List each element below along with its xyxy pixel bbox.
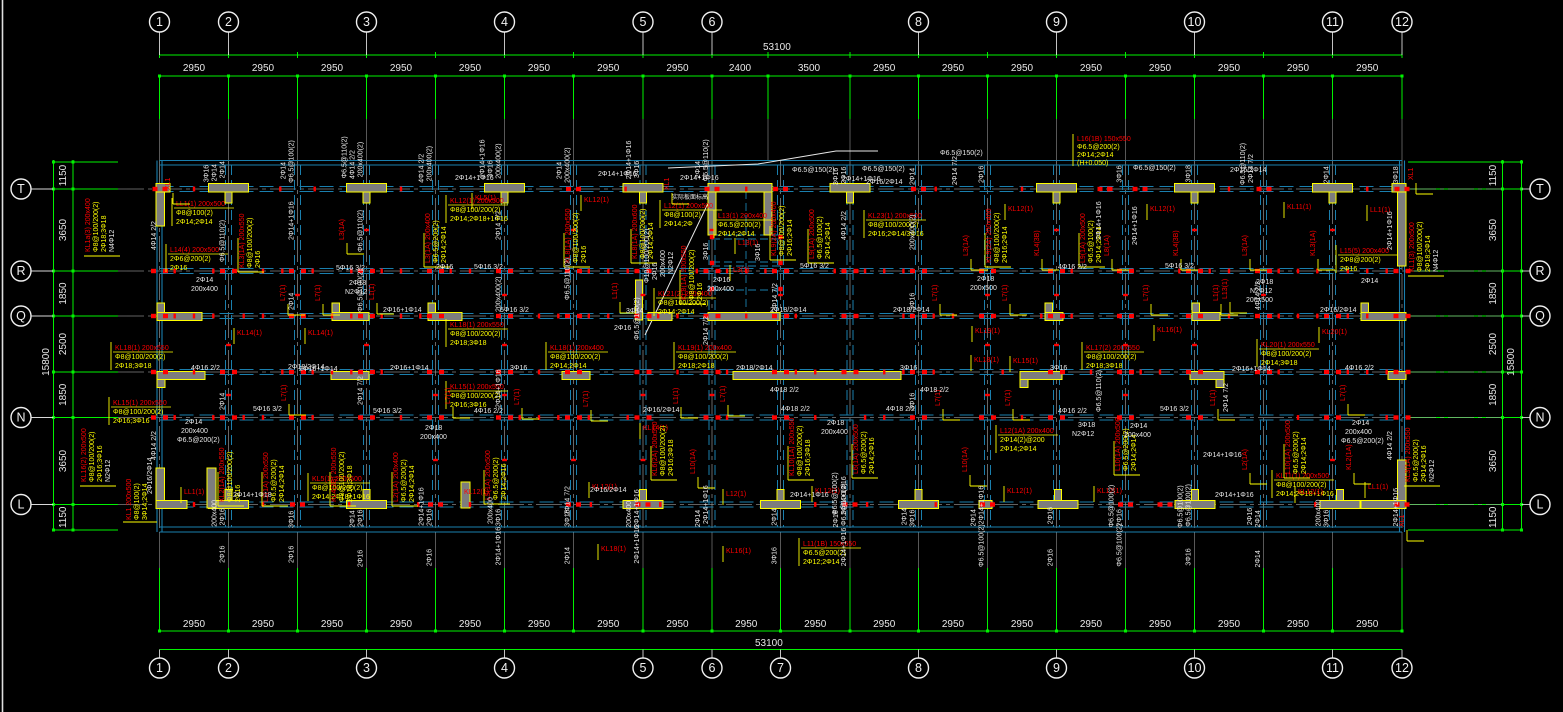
svg-text:11: 11 [1326,661,1339,675]
svg-text:Φ8@100/200(2): Φ8@100/200(2) [450,331,500,338]
svg-text:1850: 1850 [1488,383,1499,406]
svg-text:2Φ14 7/2: 2Φ14 7/2 [772,283,779,312]
svg-text:Φ6.5@100(2): Φ6.5@100(2) [1186,484,1193,527]
svg-text:Φ8@100/200(2): Φ8@100/200(2) [1417,222,1424,272]
svg-text:2Φ16: 2Φ16 [979,166,986,183]
svg-text:4: 4 [501,15,508,29]
svg-text:L7(1): L7(1) [1002,285,1009,301]
svg-text:N: N [1535,411,1544,425]
svg-text:KL5(1): KL5(1) [475,195,496,202]
svg-text:2Φ16;3Φ16: 2Φ16;3Φ16 [97,445,104,482]
svg-text:2Φ14;2Φ16: 2Φ14;2Φ16 [1421,445,1428,482]
svg-text:KL12(1): KL12(1) [1150,206,1175,213]
svg-text:L10(1A): L10(1A) [962,447,969,472]
svg-text:L7(1): L7(1) [281,385,288,401]
svg-text:2950: 2950 [666,63,689,74]
svg-text:2Φ16;3Φ18: 2Φ16;3Φ18 [347,465,354,502]
svg-text:2Φ8@200(2): 2Φ8@200(2) [1340,257,1381,264]
svg-text:KL16(1): KL16(1) [726,548,751,555]
svg-text:Φ6.5@100(2): Φ6.5@100(2) [1178,485,1185,528]
svg-text:2Φ16/2Φ14: 2Φ16/2Φ14 [1320,307,1357,314]
svg-text:1850: 1850 [1488,282,1499,305]
svg-text:KL2(1A): KL2(1A) [1346,444,1353,470]
svg-text:XL1: XL1 [1408,167,1415,180]
svg-text:2950: 2950 [1080,63,1103,74]
svg-text:2Φ14+1Φ16: 2Φ14+1Φ16 [703,485,710,524]
svg-text:2Φ14: 2Φ14 [196,277,213,284]
svg-text:2950: 2950 [528,63,551,74]
svg-text:3Φ16: 3Φ16 [772,547,779,564]
svg-text:2Φ18: 2Φ18 [977,276,994,283]
svg-text:3: 3 [363,15,370,29]
svg-text:2Φ16+1Φ14: 2Φ16+1Φ14 [1232,366,1271,373]
svg-text:Φ8@100/200(2): Φ8@100/200(2) [247,218,254,268]
svg-text:3Φ16: 3Φ16 [1050,365,1067,372]
svg-text:L7(1): L7(1) [315,285,322,301]
svg-text:Φ8@100(2): Φ8@100(2) [134,483,141,520]
svg-text:200x400(2): 200x400(2) [427,146,434,181]
svg-text:2Φ18/2Φ14: 2Φ18/2Φ14 [288,364,325,371]
svg-text:2Φ14;2Φ14: 2Φ14;2Φ14 [176,219,213,226]
svg-text:1150: 1150 [58,164,69,186]
svg-text:L8(1A): L8(1A) [1104,235,1111,256]
svg-text:2Φ16: 2Φ16 [427,509,434,526]
svg-text:2Φ14: 2Φ14 [1361,278,1378,285]
svg-text:2Φ14: 2Φ14 [212,164,219,181]
svg-text:2Φ14: 2Φ14 [281,162,288,179]
svg-text:2Φ14;2Φ14: 2Φ14;2Φ14 [658,309,695,316]
svg-text:N2Φ12: N2Φ12 [668,252,675,274]
svg-text:Φ6.5@200(2): Φ6.5@200(2) [1293,431,1300,474]
svg-text:3Φ16: 3Φ16 [1324,510,1331,527]
svg-text:Φ6.5@200(2): Φ6.5@200(2) [271,459,278,502]
svg-text:200x400: 200x400 [626,501,633,528]
svg-text:200x400(2): 200x400(2) [358,142,365,177]
svg-text:2Φ14: 2Φ14 [910,168,917,185]
svg-text:2Φ14 7/2: 2Φ14 7/2 [565,486,572,515]
svg-text:Φ8@100/200(2): Φ8@100/200(2) [994,213,1001,263]
svg-text:15800: 15800 [41,348,52,376]
svg-text:Φ8@100/200(2): Φ8@100/200(2) [797,426,804,476]
svg-text:2Φ18;3Φ18: 2Φ18;3Φ18 [115,363,152,370]
svg-text:2Φ14: 2Φ14 [289,293,296,310]
svg-text:3Φ18: 3Φ18 [1393,166,1400,183]
svg-text:Φ8@100/200(2): Φ8@100/200(2) [1276,482,1326,489]
svg-text:2Φ14: 2Φ14 [220,393,227,410]
svg-text:2950: 2950 [390,619,413,630]
svg-text:2Φ14;2Φ14: 2Φ14;2Φ14 [1077,152,1114,159]
svg-text:Φ8@100/200(2): Φ8@100/200(2) [1086,354,1136,361]
svg-text:5: 5 [640,661,647,675]
svg-text:KL4(3B) 200x550: KL4(3B) 200x550 [331,447,338,502]
svg-text:2Φ14 7/2: 2Φ14 7/2 [358,376,365,405]
svg-text:2950: 2950 [321,63,344,74]
svg-text:2950: 2950 [390,63,413,74]
svg-text:2Φ14: 2Φ14 [1352,420,1369,427]
svg-text:5Φ16 3/2: 5Φ16 3/2 [1160,406,1189,413]
svg-text:2Φ14: 2Φ14 [220,161,227,178]
svg-text:2Φ16: 2Φ16 [427,549,434,566]
svg-text:3Φ16: 3Φ16 [204,165,211,182]
svg-text:12: 12 [1395,15,1409,29]
svg-text:2Φ18: 2Φ18 [425,425,442,432]
svg-text:Φ8@100/200(2): Φ8@100/200(2) [450,207,500,214]
svg-text:KL16(2) 200x500: KL16(2) 200x500 [81,428,88,482]
svg-text:Φ6.5@100(2): Φ6.5@100(2) [832,472,839,515]
svg-text:L10(1A) 200x500: L10(1A) 200x500 [1115,417,1122,471]
svg-text:1850: 1850 [58,282,69,305]
svg-text:4Φ18 2/2: 4Φ18 2/2 [920,387,949,394]
svg-text:2Φ14;2Φ14: 2Φ14;2Φ14 [409,465,416,502]
svg-text:L: L [18,498,25,512]
svg-text:2950: 2950 [1149,619,1172,630]
svg-text:2Φ16: 2Φ16 [289,546,296,563]
svg-text:KL20(1): KL20(1) [1322,329,1347,336]
svg-text:1150: 1150 [58,506,69,528]
svg-text:Φ6.5@200(2): Φ6.5@200(2) [861,431,868,474]
svg-text:2Φ14: 2Φ14 [185,419,202,426]
svg-text:L10(1A): L10(1A) [690,449,697,474]
svg-text:200x400: 200x400 [212,500,219,527]
svg-text:KL1(3) 200x500: KL1(3) 200x500 [1409,222,1416,272]
svg-text:KL18(1) 200x550: KL18(1) 200x550 [115,345,169,352]
svg-text:3Φ16: 3Φ16 [755,244,762,261]
svg-text:Φ6.5@200(2): Φ6.5@200(2) [401,459,408,502]
svg-text:2Φ16: 2Φ16 [1048,549,1055,566]
svg-text:2950: 2950 [1011,619,1034,630]
svg-text:Φ6.5@200(2): Φ6.5@200(2) [803,550,846,557]
svg-text:10: 10 [1188,661,1202,675]
svg-text:Φ8@100/200(2): Φ8@100/200(2) [115,354,165,361]
svg-text:4Φ16 2/2: 4Φ16 2/2 [191,365,220,372]
svg-text:2Φ14: 2Φ14 [1255,510,1262,527]
svg-text:2500: 2500 [58,332,69,355]
svg-text:Φ8@100/200(2): Φ8@100/200(2) [550,354,600,361]
svg-text:Φ8@100/200(2): Φ8@100/200(2) [89,432,96,482]
svg-text:KL9(2A) 200x400: KL9(2A) 200x400 [771,201,778,256]
svg-text:2: 2 [225,661,232,675]
svg-text:2Φ14+1Φ16: 2Φ14+1Φ16 [480,139,487,178]
svg-text:3Φ16: 3Φ16 [910,293,917,310]
svg-text:2Φ14 7/2: 2Φ14 7/2 [952,156,959,185]
svg-text:2Φ14: 2Φ14 [695,510,702,527]
svg-text:L15(5) 200x400: L15(5) 200x400 [1340,248,1389,255]
svg-text:2950: 2950 [183,63,206,74]
svg-text:2Φ16: 2Φ16 [220,508,227,525]
svg-text:2Φ16: 2Φ16 [358,550,365,567]
svg-text:200x400: 200x400 [191,286,218,293]
svg-text:4Φ16 2/2: 4Φ16 2/2 [1058,264,1087,271]
svg-text:L1(1): L1(1) [1210,390,1217,406]
svg-text:Φ6.5@100(2): Φ6.5@100(2) [358,269,365,312]
svg-text:Φ6.5@150(2): Φ6.5@150(2) [1133,165,1176,172]
svg-text:3Φ18: 3Φ18 [1078,422,1095,429]
svg-text:2Φ16/2Φ14: 2Φ16/2Φ14 [643,407,680,414]
svg-text:9: 9 [1053,661,1060,675]
svg-text:5Φ16 3/2: 5Φ16 3/2 [1165,263,1194,270]
svg-text:5: 5 [640,15,647,29]
svg-text:2Φ14+1Φ16: 2Φ14+1Φ16 [419,487,426,526]
svg-text:2950: 2950 [1218,619,1241,630]
svg-text:2Φ14;2Φ: 2Φ14;2Φ [664,221,693,228]
svg-text:2950: 2950 [1149,63,1172,74]
svg-text:2Φ14;2Φ14: 2Φ14;2Φ14 [718,231,755,238]
svg-text:1850: 1850 [58,383,69,406]
svg-text:2Φ14;2Φ16: 2Φ14;2Φ16 [869,437,876,474]
svg-text:KL2(1A) 200x550: KL2(1A) 200x550 [219,447,226,502]
svg-text:3500: 3500 [798,63,821,74]
svg-text:2Φ16: 2Φ16 [614,325,631,332]
svg-text:8: 8 [915,661,922,675]
svg-text:200x400: 200x400 [1316,499,1323,526]
svg-text:53100: 53100 [763,42,791,53]
svg-text:1150: 1150 [1488,164,1499,186]
svg-text:200x400: 200x400 [1345,429,1372,436]
svg-text:2Φ14+1Φ16: 2Φ14+1Φ16 [626,141,633,180]
svg-text:L7(1): L7(1) [1340,385,1347,401]
svg-text:L3(1A): L3(1A) [339,219,346,240]
svg-text:1: 1 [156,15,163,29]
svg-text:2950: 2950 [735,619,758,630]
svg-text:12: 12 [1395,661,1409,675]
svg-text:Φ8@100/200(2): Φ8@100/200(2) [450,393,500,400]
svg-text:2Φ14;2Φ14: 2Φ14;2Φ14 [1000,446,1037,453]
svg-text:Φ8@100/200(2): Φ8@100/200(2) [339,452,346,502]
svg-text:KL12(1): KL12(1) [1298,489,1323,496]
svg-text:2Φ14;2Φ14: 2Φ14;2Φ14 [279,465,286,502]
svg-text:2Φ12;2Φ14: 2Φ12;2Φ14 [803,559,840,566]
svg-text:KL12(1): KL12(1) [1007,488,1032,495]
svg-text:Φ8@100(2): Φ8@100(2) [664,212,701,219]
svg-text:3Φ18: 3Φ18 [1186,165,1193,182]
svg-text:2Φ16;2Φ14: 2Φ16;2Φ14 [787,219,794,256]
svg-text:1: 1 [156,661,163,675]
svg-text:11: 11 [1326,15,1339,29]
svg-text:3Φ16: 3Φ16 [910,393,917,410]
svg-text:2Φ16;3Φ16: 2Φ16;3Φ16 [113,418,150,425]
svg-text:KL11(1): KL11(1) [1287,204,1311,211]
svg-text:2Φ14 7/2: 2Φ14 7/2 [1223,383,1230,412]
svg-text:Φ6.5@200(2): Φ6.5@200(2) [718,222,761,229]
svg-text:L12(1): L12(1) [726,491,746,498]
svg-text:KL1 200x500: KL1 200x500 [126,479,133,520]
svg-text:4Φ18 2/2: 4Φ18 2/2 [770,387,799,394]
svg-text:4Φ14 2/2: 4Φ14 2/2 [1255,281,1262,310]
svg-text:2Φ14: 2Φ14 [902,508,909,525]
svg-text:2Φ14(2)@200: 2Φ14(2)@200 [1000,437,1045,444]
svg-text:2400: 2400 [729,63,752,74]
svg-text:KL3(1A) 200x550: KL3(1A) 200x550 [239,213,246,268]
svg-text:Φ8@100/200(2): Φ8@100/200(2) [573,213,580,263]
svg-text:N: N [16,411,25,425]
svg-text:2950: 2950 [1080,619,1103,630]
svg-text:2Φ14;2Φ14: 2Φ14;2Φ14 [550,363,587,370]
svg-text:2: 2 [225,15,232,29]
svg-text:Φ6.5@200(2): Φ6.5@200(2) [1341,438,1384,445]
svg-text:Φ8@100/200(2): Φ8@100/200(2) [1261,351,1311,358]
svg-text:7: 7 [777,661,784,675]
svg-text:3Φ16: 3Φ16 [289,511,296,528]
svg-text:Φ8@100/200(2): Φ8@100/200(2) [113,409,163,416]
svg-text:4Φ14 2/2: 4Φ14 2/2 [151,431,158,460]
svg-text:2950: 2950 [1356,63,1379,74]
svg-text:L13(1): L13(1) [1222,279,1229,299]
svg-text:2Φ18;3Φ18: 2Φ18;3Φ18 [450,340,487,347]
svg-text:200x400(2): 200x400(2) [910,215,917,250]
svg-text:L9(1A) 200x500: L9(1A) 200x500 [1080,213,1087,263]
svg-text:Φ6.5@200(2): Φ6.5@200(2) [1413,439,1420,482]
svg-text:N2Φ12: N2Φ12 [1072,431,1094,438]
svg-text:2Φ14;2Φ14: 2Φ14;2Φ14 [1131,434,1138,471]
svg-text:3Φ16: 3Φ16 [496,509,503,526]
svg-text:3Φ16: 3Φ16 [900,365,917,372]
svg-text:3Φ16: 3Φ16 [1117,165,1124,182]
svg-text:6: 6 [709,15,716,29]
svg-text:Φ8@100/200(2): Φ8@100/200(2) [678,354,728,361]
svg-text:Φ10@100/200(2): Φ10@100/200(2) [644,229,651,283]
svg-text:N2Φ12: N2Φ12 [1429,460,1436,482]
svg-text:Φ8@100/200(2): Φ8@100/200(2) [658,300,708,307]
svg-text:2Φ14+1Φ16: 2Φ14+1Φ16 [496,527,503,566]
svg-text:R: R [16,264,25,278]
svg-text:2950: 2950 [1287,63,1310,74]
svg-text:200x400: 200x400 [1124,432,1151,439]
svg-text:XL1: XL1 [664,177,671,190]
svg-text:KL19(1): KL19(1) [975,328,1000,335]
svg-text:Φ6.5@110(2): Φ6.5@110(2) [342,136,349,178]
svg-text:2Φ14: 2Φ14 [1255,550,1262,567]
svg-text:Φ6.5@150(2): Φ6.5@150(2) [862,166,905,173]
svg-text:200x400(2): 200x400(2) [496,277,503,312]
svg-text:1150: 1150 [1488,506,1499,528]
svg-text:200x400: 200x400 [488,497,495,524]
svg-text:实际板面标高: 实际板面标高 [672,193,708,201]
svg-text:KL14(1): KL14(1) [308,330,333,337]
svg-text:2Φ14+1Φ16: 2Φ14+1Φ16 [841,528,848,567]
svg-text:KL15(1): KL15(1) [1013,358,1038,365]
svg-text:2Φ14 7/2: 2Φ14 7/2 [1248,154,1255,183]
svg-text:Φ8@100/200(2): Φ8@100/200(2) [93,202,100,252]
svg-text:Q: Q [1535,309,1545,323]
svg-text:L7(1): L7(1) [1143,285,1150,301]
svg-text:KL16(1): KL16(1) [1157,327,1182,334]
svg-text:2Φ16+1Φ14: 2Φ16+1Φ14 [390,365,429,372]
svg-text:2Φ18;3Φ18: 2Φ18;3Φ18 [1086,363,1123,370]
svg-text:3Φ16: 3Φ16 [488,160,495,177]
svg-text:Φ6.5@110(2): Φ6.5@110(2) [703,139,710,181]
svg-text:5Φ16 3/2: 5Φ16 3/2 [253,406,282,413]
svg-text:10: 10 [1188,15,1202,29]
svg-text:L1(1): L1(1) [673,388,680,404]
svg-text:Q: Q [16,309,26,323]
svg-text:KL18(1) 200x550: KL18(1) 200x550 [450,322,504,329]
svg-text:Φ6.5@100(2): Φ6.5@100(2) [289,140,296,183]
svg-text:3Φ16: 3Φ16 [703,243,710,260]
svg-text:5Φ16 3/2: 5Φ16 3/2 [800,263,829,270]
svg-text:L6(1A) 200x500: L6(1A) 200x500 [853,424,860,474]
svg-text:(H+0.050): (H+0.050) [1077,160,1108,167]
svg-text:Φ6.5@110(2): Φ6.5@110(2) [1096,370,1103,412]
svg-text:2950: 2950 [597,63,620,74]
svg-text:2Φ14+1Φ16: 2Φ14+1Φ16 [1203,452,1242,459]
svg-text:Φ6.5@100(2): Φ6.5@100(2) [634,297,641,340]
svg-text:2Φ18;2Φ14: 2Φ18;2Φ14 [1425,235,1432,272]
svg-text:2Φ14: 2Φ14 [350,510,357,527]
svg-text:2950: 2950 [666,619,689,630]
svg-text:2950: 2950 [1356,619,1379,630]
svg-text:4Φ16 2/2: 4Φ16 2/2 [474,408,503,415]
svg-text:2950: 2950 [1287,619,1310,630]
svg-text:200x400: 200x400 [420,434,447,441]
svg-text:2Φ16: 2Φ16 [358,510,365,527]
svg-text:LL1(1) 200x500: LL1(1) 200x500 [176,201,225,208]
svg-text:KL18(1): KL18(1) [601,546,626,553]
svg-text:T: T [1536,182,1544,196]
svg-text:2950: 2950 [183,619,206,630]
svg-text:2Φ14+1Φ16: 2Φ14+1Φ16 [634,489,641,528]
svg-text:L2(1A): L2(1A) [1242,449,1249,470]
svg-text:4Φ14 2/2: 4Φ14 2/2 [350,150,357,179]
svg-text:3Φ16: 3Φ16 [510,365,527,372]
svg-text:KL18(1) 200x400: KL18(1) 200x400 [550,345,604,352]
svg-text:4Φ14 2/2: 4Φ14 2/2 [841,211,848,240]
svg-text:3650: 3650 [58,218,69,241]
svg-text:2Φ18;2Φ18: 2Φ18;2Φ18 [678,363,715,370]
svg-text:200x400(2): 200x400(2) [565,147,572,182]
svg-text:Φ6.5@110(2): Φ6.5@110(2) [358,210,365,252]
svg-text:KL1a(3) 200x400: KL1a(3) 200x400 [85,198,92,252]
svg-text:2Φ14: 2Φ14 [772,508,779,525]
svg-text:2Φ18;3Φ18: 2Φ18;3Φ18 [101,215,108,252]
svg-text:2Φ16: 2Φ16 [581,246,588,263]
svg-text:Φ6.5@100(2): Φ6.5@100(2) [1109,485,1116,528]
svg-text:N4Φ12: N4Φ12 [109,230,116,252]
svg-text:Φ8@100(2): Φ8@100(2) [176,210,213,217]
svg-text:2Φ16: 2Φ16 [713,277,730,284]
svg-text:2950: 2950 [252,619,275,630]
svg-text:2950: 2950 [528,619,551,630]
svg-text:2Φ16;3Φ18: 2Φ16;3Φ18 [805,439,812,476]
svg-text:200x400: 200x400 [707,286,734,293]
svg-text:Φ6.5@200(2): Φ6.5@200(2) [493,457,500,500]
svg-text:2Φ16: 2Φ16 [652,263,659,280]
svg-text:L3(1A): L3(1A) [1242,235,1249,256]
svg-text:2Φ14: 2Φ14 [1130,423,1147,430]
svg-text:KL6(2A) 200x550: KL6(2A) 200x550 [652,421,659,476]
svg-text:3650: 3650 [1488,218,1499,241]
svg-text:9: 9 [1053,15,1060,29]
svg-text:Φ8@100/200(2): Φ8@100/200(2) [689,250,696,300]
svg-text:4Φ18 2/2: 4Φ18 2/2 [781,406,810,413]
svg-text:KL10(1A) 200x550: KL10(1A) 200x550 [789,418,796,476]
svg-text:2Φ14 7/2: 2Φ14 7/2 [703,316,710,345]
svg-text:XL1: XL1 [165,177,172,190]
svg-text:2Φ14 7/2: 2Φ14 7/2 [496,211,503,240]
svg-text:2Φ16: 2Φ16 [1340,266,1357,273]
svg-text:3Φ16: 3Φ16 [910,510,917,527]
svg-text:R: R [1535,264,1544,278]
svg-text:KL20(1) 200x550: KL20(1) 200x550 [1261,342,1315,349]
svg-text:Φ6.5@110(2): Φ6.5@110(2) [565,258,572,300]
svg-text:2Φ14: 2Φ14 [1324,166,1331,183]
svg-text:2950: 2950 [252,63,275,74]
svg-text:KL3(1A) 200x550: KL3(1A) 200x550 [1405,427,1412,482]
svg-text:2Φ14: 2Φ14 [557,162,564,179]
svg-text:2Φ16: 2Φ16 [255,251,262,268]
svg-text:4: 4 [501,661,508,675]
svg-text:LL1(1): LL1(1) [1368,484,1388,491]
svg-text:L7(1): L7(1) [720,386,727,402]
